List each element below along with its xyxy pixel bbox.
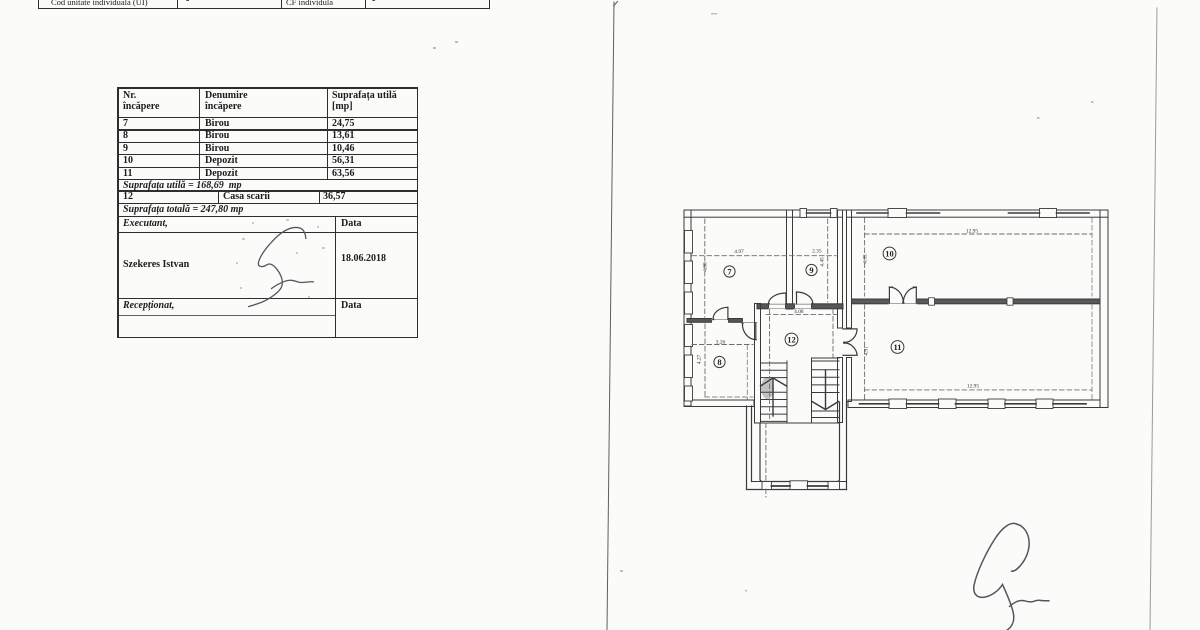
- svg-text:4.08: 4.08: [794, 309, 804, 315]
- svg-text:9: 9: [809, 265, 813, 275]
- svg-text:4.35: 4.35: [863, 254, 869, 264]
- svg-text:2.35: 2.35: [812, 249, 822, 255]
- svg-text:12: 12: [787, 335, 796, 345]
- svg-text:8: 8: [717, 357, 721, 367]
- svg-text:11: 11: [893, 342, 901, 352]
- svg-text:4.45: 4.45: [820, 257, 826, 267]
- svg-text:4.97: 4.97: [734, 249, 744, 255]
- svg-text:12.95: 12.95: [966, 229, 978, 235]
- svg-text:7: 7: [727, 267, 732, 277]
- svg-text:4.98: 4.98: [703, 262, 709, 272]
- svg-text:10: 10: [885, 249, 894, 259]
- svg-text:4.27: 4.27: [697, 354, 703, 364]
- svg-text:12.95: 12.95: [967, 384, 979, 390]
- svg-text:4.91: 4.91: [864, 346, 870, 356]
- svg-text:3.26: 3.26: [716, 340, 726, 346]
